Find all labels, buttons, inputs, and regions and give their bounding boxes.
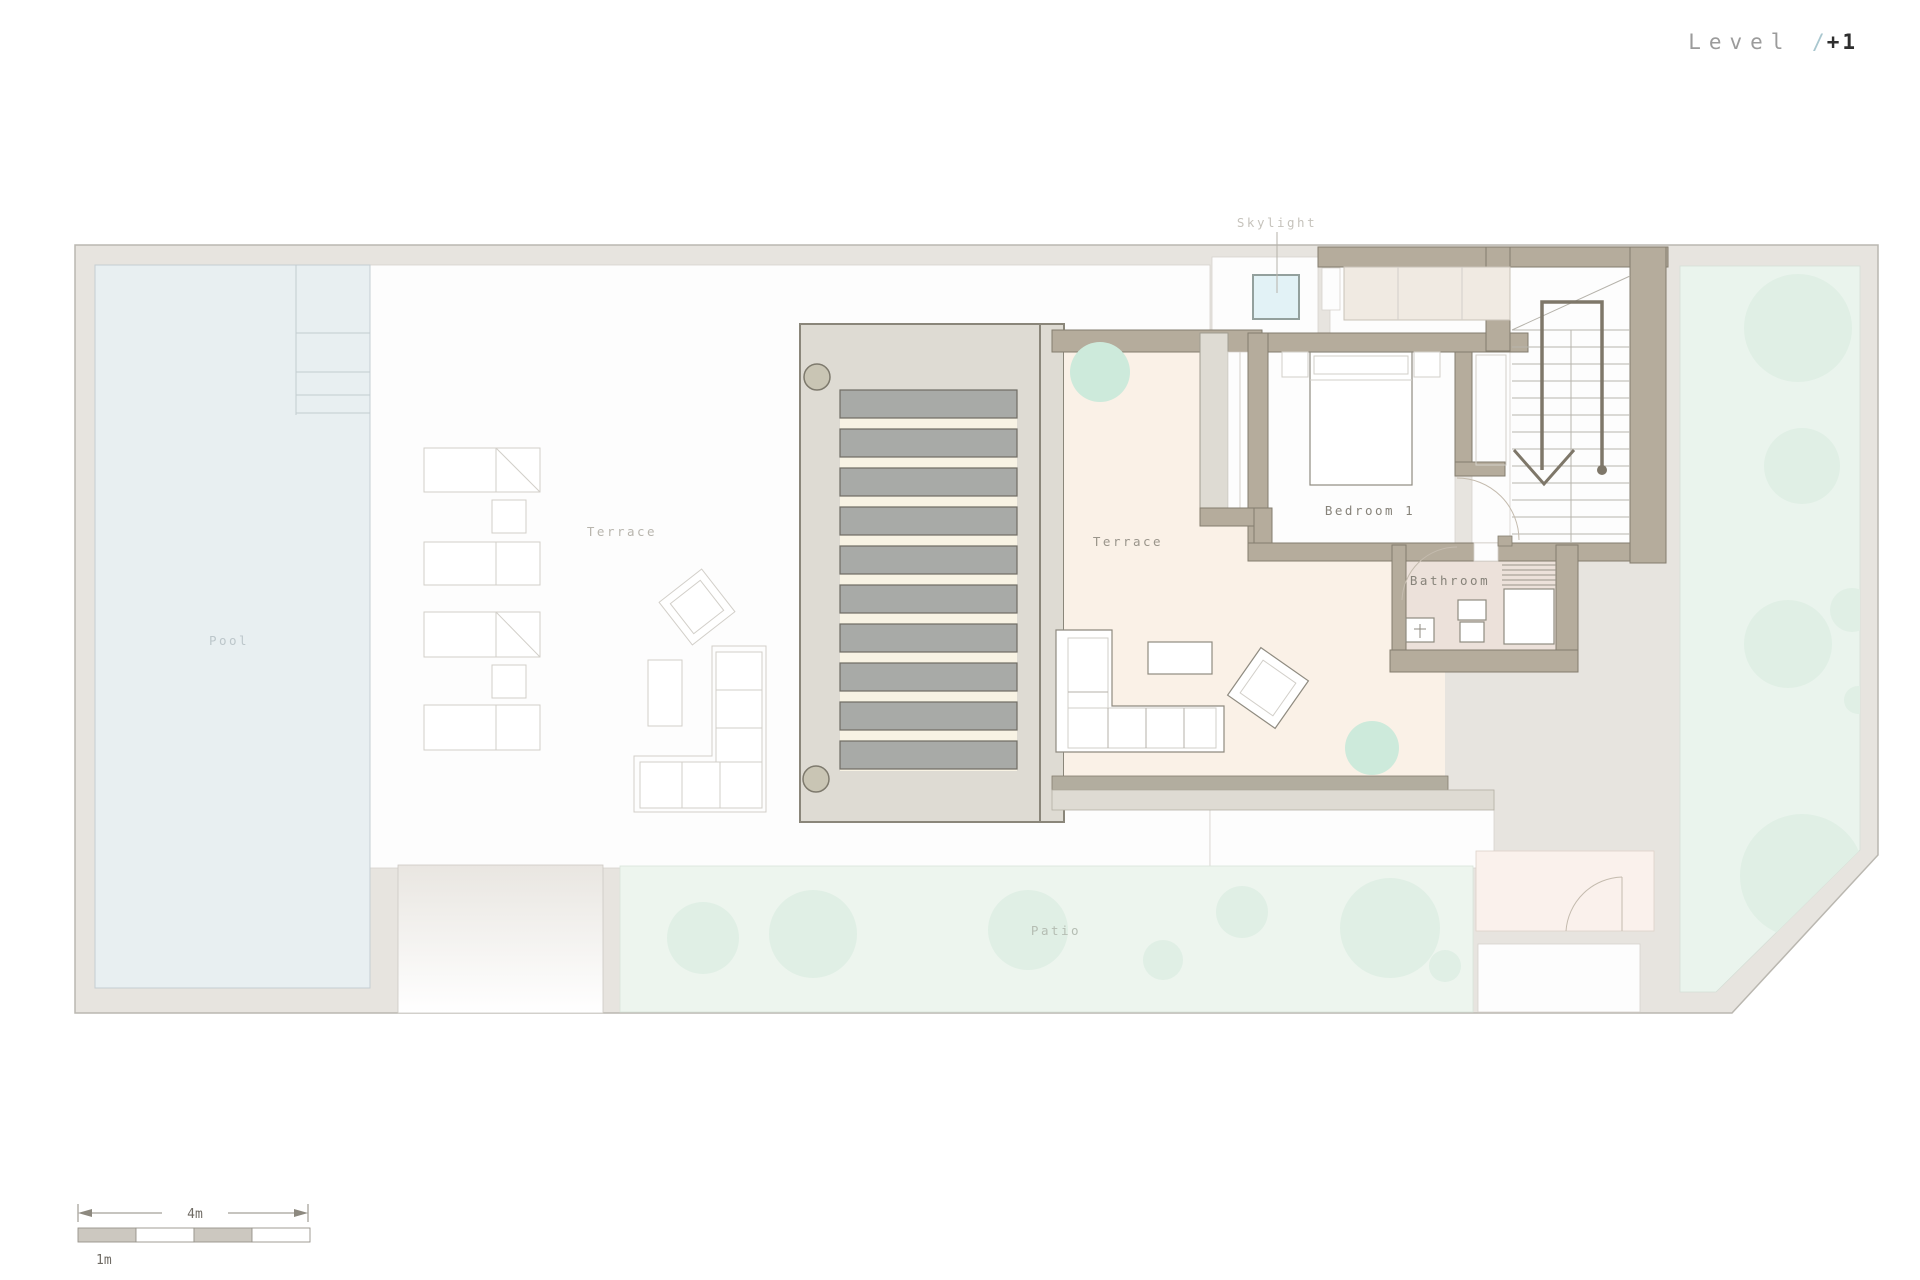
coffee-table <box>1148 642 1212 674</box>
door-opening <box>1474 543 1498 561</box>
floor-plan-drawing: Pool Terrace Terrace Bedroom 1 Bathroom … <box>0 0 1920 1280</box>
side-table <box>492 500 526 533</box>
floor-plan-page: Level /+1 <box>0 0 1920 1280</box>
bathroom-label: Bathroom <box>1410 573 1490 588</box>
handrail-post <box>1597 465 1607 475</box>
pergola-column <box>803 766 829 792</box>
toilet-bowl <box>1460 622 1484 642</box>
door-leaf <box>1498 536 1512 546</box>
shower-tray <box>1504 589 1554 644</box>
scale-bar: 4m 1m <box>78 1204 310 1268</box>
indoor-terrace-label: Terrace <box>1093 534 1163 549</box>
scale-major-label: 4m <box>187 1207 203 1222</box>
bed-pillows <box>1314 356 1408 374</box>
pergola-column <box>804 364 830 390</box>
nightstand <box>1414 352 1440 377</box>
wardrobe <box>1344 267 1510 320</box>
bedroom-label: Bedroom 1 <box>1325 503 1415 518</box>
ramp-steps <box>398 865 603 1013</box>
pergola <box>800 324 1064 822</box>
side-table <box>492 665 526 698</box>
pool-area <box>95 265 370 988</box>
patio-area <box>620 866 1473 1012</box>
scale-minor-label: 1m <box>96 1253 112 1268</box>
stair-room-floor <box>1510 267 1630 552</box>
scale-bar-segments <box>78 1228 310 1242</box>
nightstand <box>1282 352 1308 377</box>
plant <box>1070 342 1130 402</box>
skylight-glass <box>1253 275 1299 319</box>
toilet-tank <box>1458 600 1486 620</box>
outdoor-coffee-table <box>648 660 682 726</box>
patio-label: Patio <box>1031 923 1081 938</box>
pool-label: Pool <box>209 633 249 648</box>
skylight-label: Skylight <box>1237 215 1317 230</box>
outdoor-terrace-label: Terrace <box>587 524 657 539</box>
plant <box>1345 721 1399 775</box>
exterior-stair-notch <box>1478 944 1640 1012</box>
